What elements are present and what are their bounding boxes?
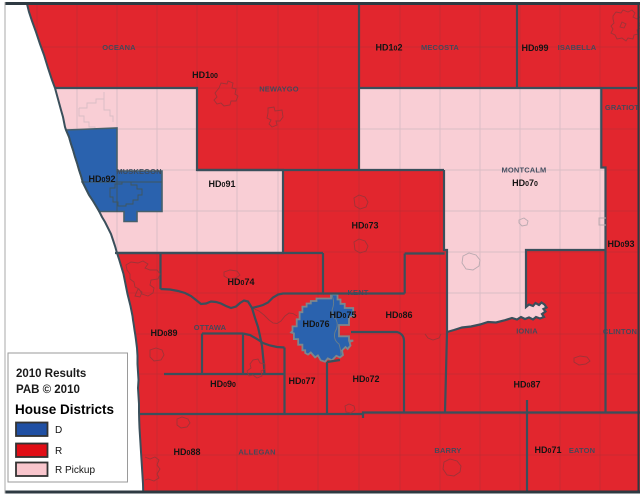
svg-text:2010 Results: 2010 Results <box>16 368 86 380</box>
svg-text:R: R <box>55 446 62 457</box>
svg-text:MUSKEGON: MUSKEGON <box>116 167 161 176</box>
svg-text:NEWAYGO: NEWAYGO <box>259 85 299 94</box>
svg-text:OCEANA: OCEANA <box>102 43 136 52</box>
svg-text:CLINTON: CLINTON <box>603 327 637 336</box>
svg-text:BARRY: BARRY <box>434 446 461 455</box>
svg-text:ISABELLA: ISABELLA <box>558 43 597 52</box>
svg-text:R Pickup: R Pickup <box>55 465 95 476</box>
svg-text:EATON: EATON <box>569 446 595 455</box>
svg-text:ALLEGAN: ALLEGAN <box>238 448 275 457</box>
svg-text:House Districts: House Districts <box>15 402 114 417</box>
svg-text:HD102: HD102 <box>376 43 403 53</box>
svg-text:IONIA: IONIA <box>516 327 538 336</box>
svg-text:D: D <box>55 425 62 436</box>
svg-text:GRATIOT: GRATIOT <box>605 103 640 112</box>
svg-text:KENT: KENT <box>347 288 368 297</box>
svg-text:OTTAWA: OTTAWA <box>194 323 227 332</box>
svg-text:MECOSTA: MECOSTA <box>421 43 459 52</box>
svg-text:MONTCALM: MONTCALM <box>502 166 547 175</box>
svg-text:PAB © 2010: PAB © 2010 <box>16 384 80 396</box>
